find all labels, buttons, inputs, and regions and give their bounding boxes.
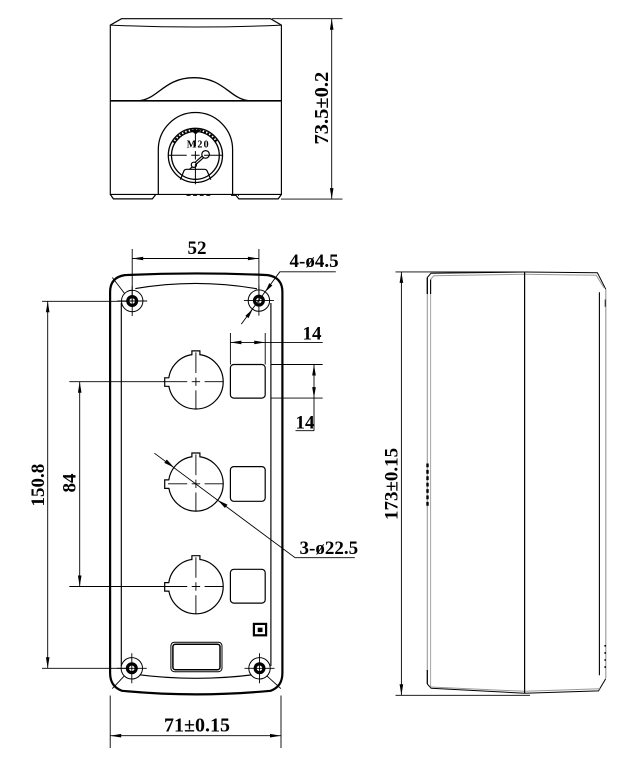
svg-text:173±0.15: 173±0.15 [382, 448, 403, 520]
svg-text:150.8: 150.8 [28, 464, 49, 507]
svg-text:52: 52 [188, 238, 207, 259]
svg-text:71±0.15: 71±0.15 [164, 714, 230, 736]
svg-text:3-ø22.5: 3-ø22.5 [300, 538, 359, 559]
svg-text:4-ø4.5: 4-ø4.5 [290, 251, 339, 272]
svg-text:84: 84 [60, 473, 81, 493]
svg-text:14: 14 [296, 413, 316, 434]
svg-text:73.5±0.2: 73.5±0.2 [311, 72, 333, 145]
svg-text:M20: M20 [187, 140, 210, 151]
svg-text:14: 14 [303, 323, 323, 344]
